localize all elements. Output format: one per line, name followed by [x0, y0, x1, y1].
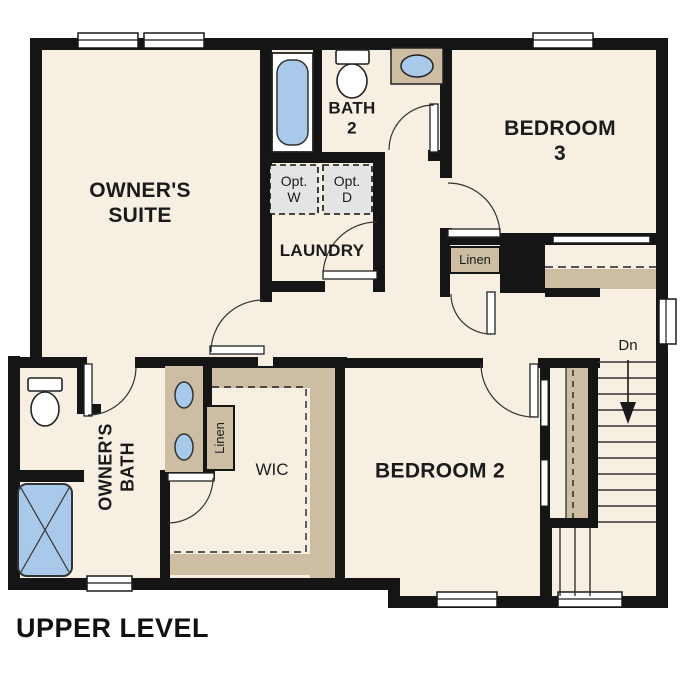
owners-suite-doorway-threshold: [258, 302, 273, 366]
bedroom3-door-leaf: [448, 229, 500, 237]
bath2-door-leaf: [430, 104, 438, 152]
hall-linen-door-leaf: [487, 292, 495, 334]
laundry-label: LAUNDRY: [280, 241, 365, 261]
owners-bath-toilet: [28, 378, 62, 426]
wic-door-leaf: [168, 473, 214, 481]
owners-suite-door-leaf: [210, 346, 264, 354]
stairs-down-label: Dn: [618, 337, 637, 355]
owners-bath-label: OWNER'S BATH: [95, 423, 138, 510]
floor-plan-upper-level: OWNER'S SUITE BATH 2 BEDROOM 3 LAUNDRY O…: [0, 0, 687, 687]
bedroom2-closet: [566, 368, 588, 518]
owners-bath-door-leaf: [84, 364, 92, 416]
opt-washer-label: Opt. W: [281, 173, 307, 205]
bedroom2-label: BEDROOM 2: [375, 458, 505, 483]
shower: [18, 484, 72, 576]
bedroom2-door-leaf: [530, 364, 538, 417]
hall-linen-label: Linen: [459, 252, 491, 268]
bath2-toilet: [336, 50, 369, 98]
bath-linen-label: Linen: [212, 422, 228, 454]
owners-suite-label: OWNER'S SUITE: [89, 178, 191, 228]
vanity-sink-1: [175, 382, 193, 408]
laundry-door-leaf: [323, 271, 377, 279]
opt-dryer-label: Opt. D: [334, 173, 360, 205]
stairs-top: [545, 267, 656, 289]
plan-title: UPPER LEVEL: [16, 613, 209, 644]
bedroom3-label: BEDROOM 3: [497, 116, 624, 166]
vanity-sink-2: [175, 434, 193, 460]
wic-label: WIC: [255, 460, 288, 480]
bath2-sink: [401, 55, 433, 77]
bath2-label: BATH 2: [328, 99, 375, 140]
